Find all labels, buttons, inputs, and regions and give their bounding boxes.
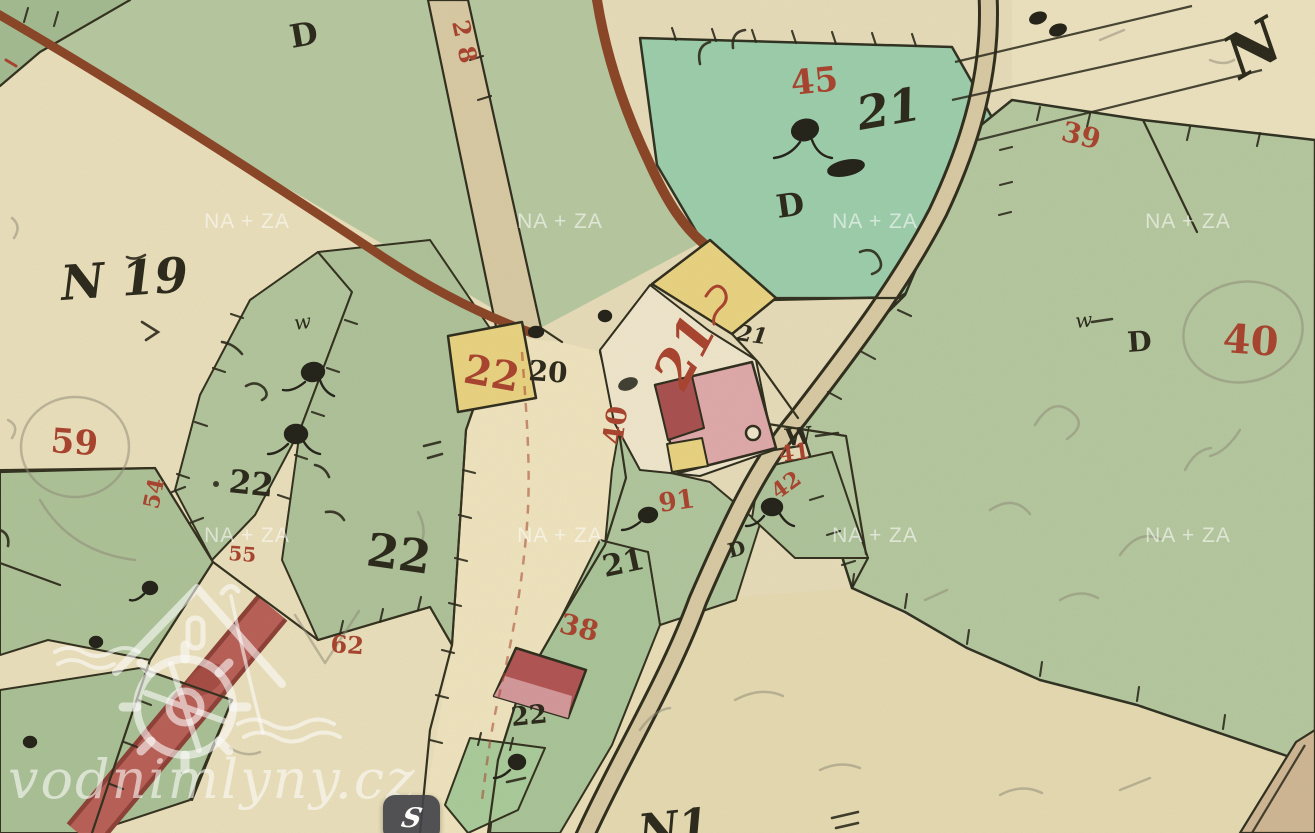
house-label-n19: N 19: [57, 247, 190, 312]
parcel-label-91: 91: [657, 484, 697, 519]
watermark-tile: NA + ZA: [832, 210, 918, 233]
letter-d-teal: D: [774, 184, 807, 225]
watermark-tile: NA + ZA: [204, 210, 290, 233]
tree-symbol: [599, 311, 611, 321]
watermark-tile: NA + ZA: [204, 524, 290, 547]
chat-widget-icon: S: [398, 803, 424, 833]
parcel-label-45: 45: [789, 59, 840, 104]
parcel-label-22-bottom: 22: [510, 699, 549, 733]
survey-point: [746, 426, 760, 440]
meadow-mark-w-right: w: [1074, 307, 1094, 333]
parcel-label-59: 59: [49, 421, 99, 464]
watermark-tile: NA + ZA: [517, 524, 603, 547]
parcel-label-40-vertical: 40: [596, 404, 634, 447]
watermark-tile: NA + ZA: [1145, 210, 1231, 233]
parcel-label-40-right: 40: [1221, 315, 1280, 366]
parcel-label-21-script: 21: [852, 77, 925, 141]
meadow-mark-w-left: w: [292, 309, 312, 335]
cadastral-map-canvas[interactable]: D 28 45 21 D 39 N N 19 59 w 22 54 55 22 …: [0, 0, 1315, 833]
parcel-label-22-yellow: 22: [460, 346, 523, 402]
parcel-label-21-small: 21: [734, 320, 769, 350]
site-watermark-text: vodnimlyny.cz: [8, 748, 417, 811]
parcel-label-22-big: 22: [363, 522, 434, 584]
watermark-tile: NA + ZA: [517, 210, 603, 233]
tree-symbol: [90, 637, 102, 647]
letter-d-right: D: [1126, 324, 1153, 359]
parcel-label-62: 62: [330, 629, 365, 660]
parcel-label-41: 41: [777, 438, 811, 468]
watermark-tile: NA + ZA: [1145, 524, 1231, 547]
building-yellow-small: [667, 438, 708, 472]
tree-symbol: [24, 737, 36, 747]
chat-widget-button[interactable]: S: [383, 795, 440, 833]
map-drawing: D 28 45 21 D 39 N N 19 59 w 22 54 55 22 …: [0, 0, 1315, 833]
parcel-label-20: 20: [528, 354, 569, 390]
parcel-label-22-dot: 22: [227, 462, 275, 504]
junction-blob: [529, 327, 543, 337]
watermark-tile: NA + ZA: [832, 524, 918, 547]
